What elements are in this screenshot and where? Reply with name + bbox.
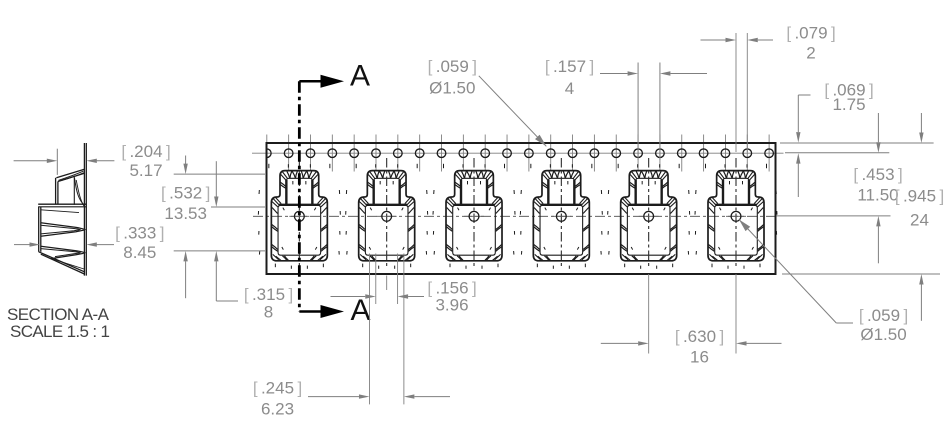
svg-text:3.96: 3.96 <box>435 296 468 315</box>
svg-text:8: 8 <box>264 302 273 321</box>
svg-text:[ .059 ]: [ .059 ] <box>859 306 908 325</box>
svg-text:[ .945 ]: [ .945 ] <box>895 187 944 206</box>
svg-text:5.17: 5.17 <box>129 161 162 180</box>
svg-text:[ .630 ]: [ .630 ] <box>675 327 724 346</box>
svg-text:SCALE 1.5 : 1: SCALE 1.5 : 1 <box>10 322 110 341</box>
svg-text:4: 4 <box>565 79 574 98</box>
svg-text:11.50: 11.50 <box>857 186 898 205</box>
svg-text:[ .204 ]: [ .204 ] <box>121 142 170 161</box>
svg-text:6.23: 6.23 <box>261 400 294 419</box>
svg-text:8.45: 8.45 <box>123 243 156 262</box>
svg-text:Ø1.50: Ø1.50 <box>860 325 906 344</box>
svg-text:16: 16 <box>690 348 709 367</box>
svg-text:[ .157 ]: [ .157 ] <box>545 57 594 76</box>
svg-text:A: A <box>350 60 370 93</box>
svg-text:[ .079 ]: [ .079 ] <box>786 24 835 43</box>
svg-text:[ .315 ]: [ .315 ] <box>244 285 293 304</box>
svg-text:1.75: 1.75 <box>832 95 865 114</box>
svg-text:[ .059 ]: [ .059 ] <box>428 57 477 76</box>
svg-text:13.53: 13.53 <box>164 204 207 223</box>
svg-text:Ø1.50: Ø1.50 <box>429 79 475 98</box>
svg-text:24: 24 <box>910 210 929 229</box>
svg-text:[ .333 ]: [ .333 ] <box>115 224 164 243</box>
svg-text:2: 2 <box>806 44 815 63</box>
svg-text:A: A <box>350 294 370 327</box>
svg-text:[ .453 ]: [ .453 ] <box>853 165 902 184</box>
svg-text:[ .532 ]: [ .532 ] <box>161 183 210 202</box>
svg-text:[ .245 ]: [ .245 ] <box>253 379 302 398</box>
